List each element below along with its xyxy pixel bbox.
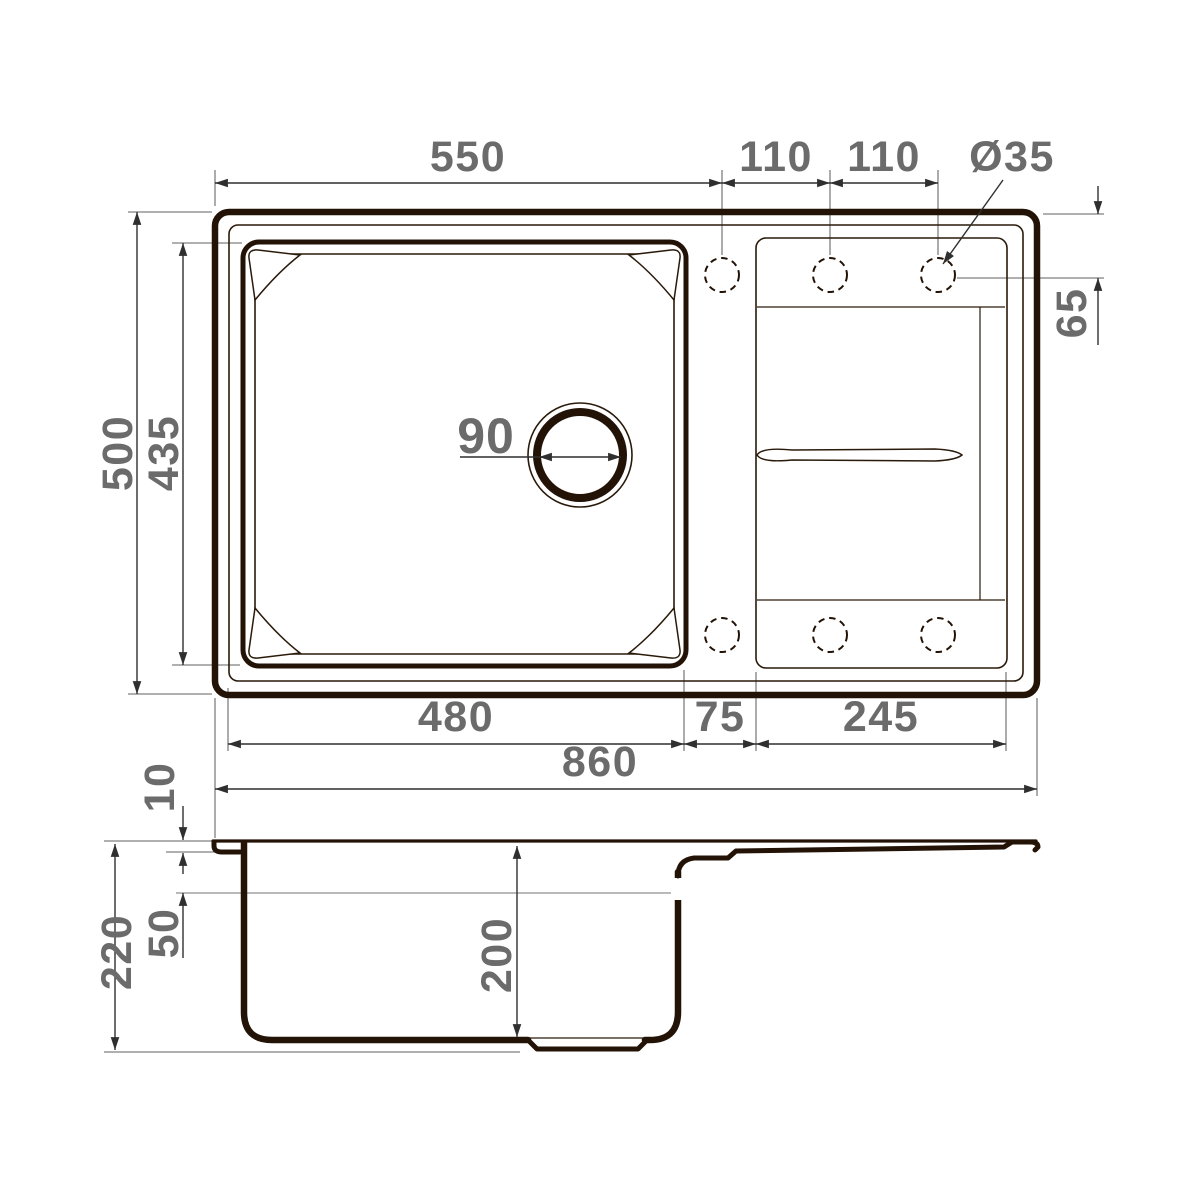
drain-inner-circle	[537, 412, 623, 498]
wall-overflow-gap	[671, 878, 685, 900]
dim-label-65: 65	[1048, 288, 1096, 339]
dim-label-435: 435	[140, 415, 188, 491]
dim-label-480: 480	[418, 693, 494, 741]
dim-label-110-first: 110	[739, 133, 813, 181]
sink-section-profile	[213, 841, 1038, 1049]
faucet-hole	[921, 618, 955, 652]
dim-label-200: 200	[473, 917, 521, 993]
bowl-corner-chamfer-tr	[629, 250, 680, 300]
side-view-extension-lines	[104, 841, 684, 1052]
faucet-hole	[705, 258, 739, 292]
dim-label-860: 860	[562, 738, 638, 786]
drainboard	[756, 238, 1007, 668]
top-view: 550 110 110 Ø35 500 435 65 90 480 75 245…	[94, 133, 1104, 838]
drainboard-groove	[757, 449, 962, 461]
dim-label-220: 220	[93, 914, 141, 990]
drawing-canvas: 550 110 110 Ø35 500 435 65 90 480 75 245…	[0, 0, 1200, 1200]
dim-label-hole-diameter: Ø35	[969, 133, 1055, 181]
dim-label-550: 550	[430, 133, 506, 181]
drainboard-profile	[678, 842, 1038, 876]
faucet-hole	[921, 258, 955, 292]
hole-diameter-leader	[943, 180, 1003, 264]
dim-label-75: 75	[695, 693, 746, 741]
faucet-hole	[705, 618, 739, 652]
side-view: 10 220 50 200	[93, 762, 1038, 1052]
sink-drawing-svg: 550 110 110 Ø35 500 435 65 90 480 75 245…	[0, 0, 1200, 1200]
dim-label-110-second: 110	[847, 133, 921, 181]
bowl-corner-chamfer-br	[629, 608, 680, 658]
drain-outer-circle	[528, 403, 632, 507]
bowl-corner-chamfer-tl	[249, 250, 300, 300]
faucet-hole	[813, 258, 847, 292]
dim-label-50: 50	[140, 908, 188, 959]
dim-label-10: 10	[136, 762, 184, 813]
rim-lip	[214, 842, 240, 852]
bowl-corner-chamfer-bl	[249, 608, 300, 658]
dim-label-500: 500	[94, 415, 142, 491]
dim-label-245: 245	[843, 693, 919, 741]
dim-label-90: 90	[457, 408, 515, 464]
faucet-hole	[813, 618, 847, 652]
drain-recess	[528, 1040, 647, 1049]
